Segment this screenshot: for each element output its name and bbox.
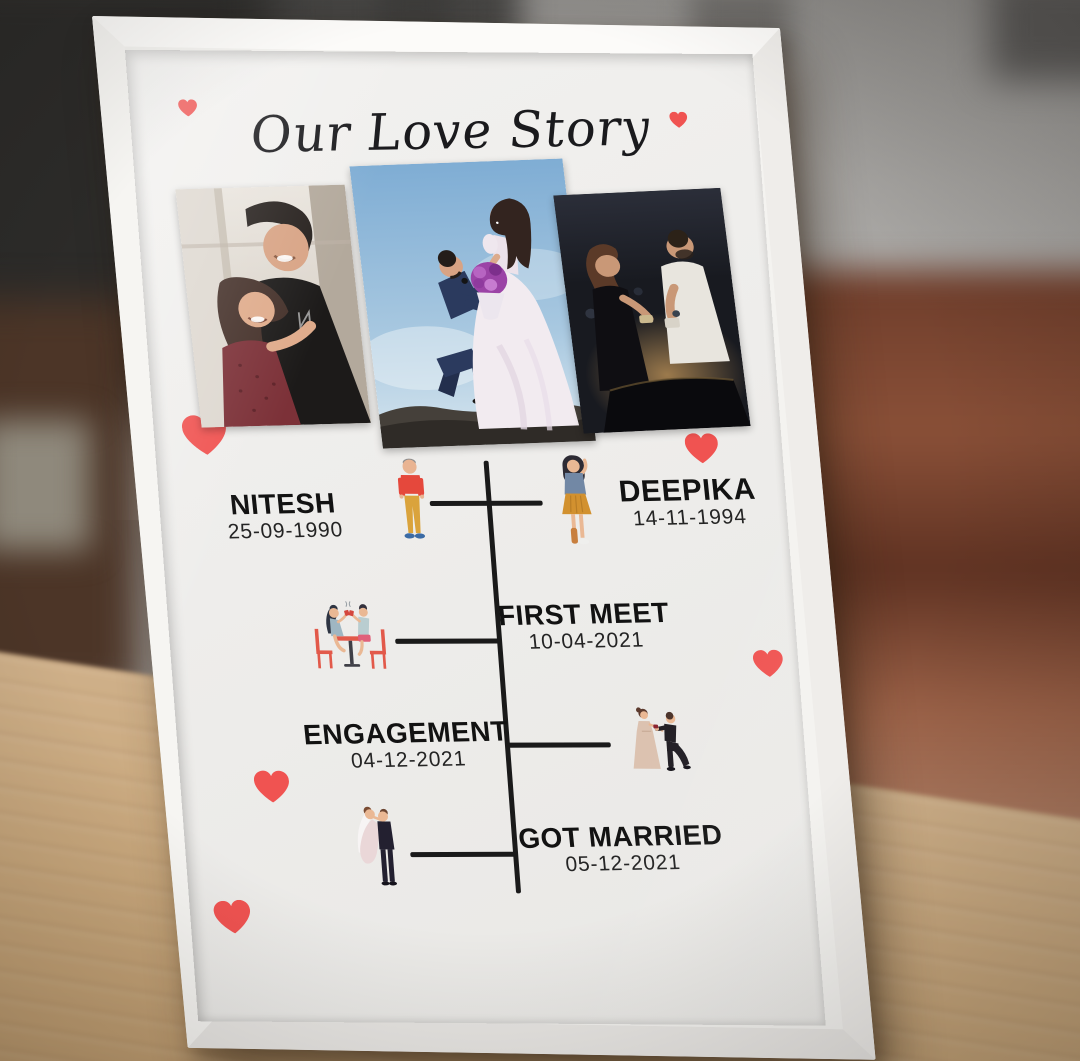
event-deepika: DEEPIKA 14-11-1994: [556, 474, 821, 533]
milestone-label: ENGAGEMENT: [275, 716, 537, 751]
event-got-married: GOT MARRIED 05-12-2021: [489, 820, 754, 879]
milestone-date: 05-12-2021: [492, 850, 754, 879]
married-couple-icon: [348, 804, 407, 888]
heart-decoration: [669, 112, 688, 128]
milestone-label: GOT MARRIED: [489, 820, 751, 855]
event-engagement: ENGAGEMENT 04-12-2021: [275, 716, 540, 775]
background-blur-highlight: [0, 420, 90, 550]
heart-decoration: [212, 899, 253, 934]
person-birthdate: 14-11-1994: [559, 504, 821, 533]
love-story-print: Our Love Story: [125, 50, 826, 1026]
heart-icon: [669, 112, 688, 128]
photo-couple-hug: [175, 185, 371, 428]
heart-icon: [253, 770, 290, 802]
proposal-illustration: [625, 704, 696, 773]
timeline-branch-names: [430, 501, 543, 506]
cafe-date-icon: [294, 597, 406, 674]
milestone-date: 04-12-2021: [278, 746, 540, 775]
heart-decoration: [752, 649, 785, 677]
couple-hug-photo: [175, 185, 371, 428]
proposal-icon: [625, 704, 696, 773]
background-corner-shadow: [990, 0, 1080, 80]
heart-icon: [752, 649, 785, 677]
heart-decoration: [684, 433, 719, 463]
photo-night-date: [553, 188, 750, 434]
person-name: DEEPIKA: [556, 474, 818, 509]
event-first-meet: FIRST MEET 10-04-2021: [453, 597, 718, 656]
heart-icon: [178, 99, 198, 116]
poster-title: Our Love Story: [248, 98, 653, 164]
milestone-date: 10-04-2021: [456, 627, 718, 656]
person-birthdate: 25-09-1990: [155, 517, 417, 546]
married-couple-illustration: [348, 804, 407, 888]
framed-love-story-photo: Our Love Story: [0, 0, 1080, 1061]
cafe-date-illustration: [294, 597, 406, 674]
heart-icon: [684, 433, 719, 463]
heart-decoration: [178, 99, 198, 116]
heart-icon: [212, 899, 253, 934]
picture-frame: Our Love Story: [92, 16, 876, 1060]
night-date-photo: [553, 188, 750, 434]
event-nitesh: NITESH 25-09-1990: [152, 487, 417, 546]
heart-decoration: [253, 770, 290, 802]
